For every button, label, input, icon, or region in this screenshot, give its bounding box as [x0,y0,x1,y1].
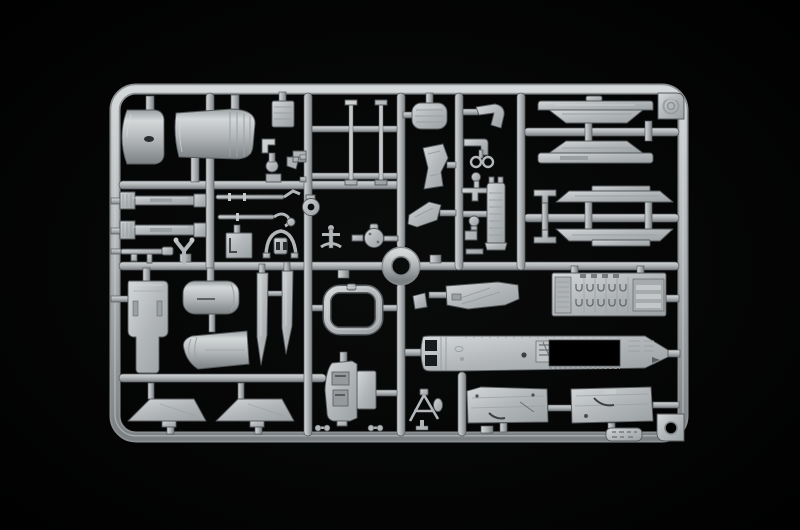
runner-h-lowerleft [119,374,326,382]
hole-tab [657,414,684,441]
runner-h-topleft [119,181,404,189]
sprue-photograph [0,0,800,530]
runner-v5 [517,93,525,270]
launcher-tower [485,177,507,250]
pylon-connector-left [585,121,592,141]
fuselage-barrel-section [183,281,239,314]
intake-opening-lower [425,355,437,366]
runner-v4 [455,93,463,270]
runner-h-pylons [524,128,679,136]
rail-connector-right [645,200,652,231]
small-wedge [413,293,427,309]
wing-panel-connector [548,405,572,411]
tail-cone-section [183,331,249,369]
avionics-box [272,101,294,127]
runner-h-center-left [119,262,385,270]
pylon-connector-right [645,121,652,141]
exhaust-cone-half [122,110,164,164]
equipment-bay [552,273,666,316]
sprue-photo-canvas [0,0,800,530]
chip-detail [144,136,154,142]
wing-panel-b [571,387,653,423]
runner-v3-lower [397,283,405,436]
locating-hole [665,422,677,434]
logo-tab [658,93,684,119]
runner-v4b [458,372,466,436]
mold-tag [606,428,642,441]
strut-crossbar-top [312,126,397,132]
rear-fuselage-shell [175,109,255,159]
bay-cutout [549,340,620,366]
rail-connector-left [585,200,592,231]
fuselage-half [421,336,668,371]
wing-panel-a [467,387,548,423]
intake-opening-upper [425,340,437,351]
seat-cushion [412,103,447,129]
ring-hole [308,204,315,211]
runner-v2 [304,93,312,436]
strut-crossbar-bottom [312,173,397,179]
